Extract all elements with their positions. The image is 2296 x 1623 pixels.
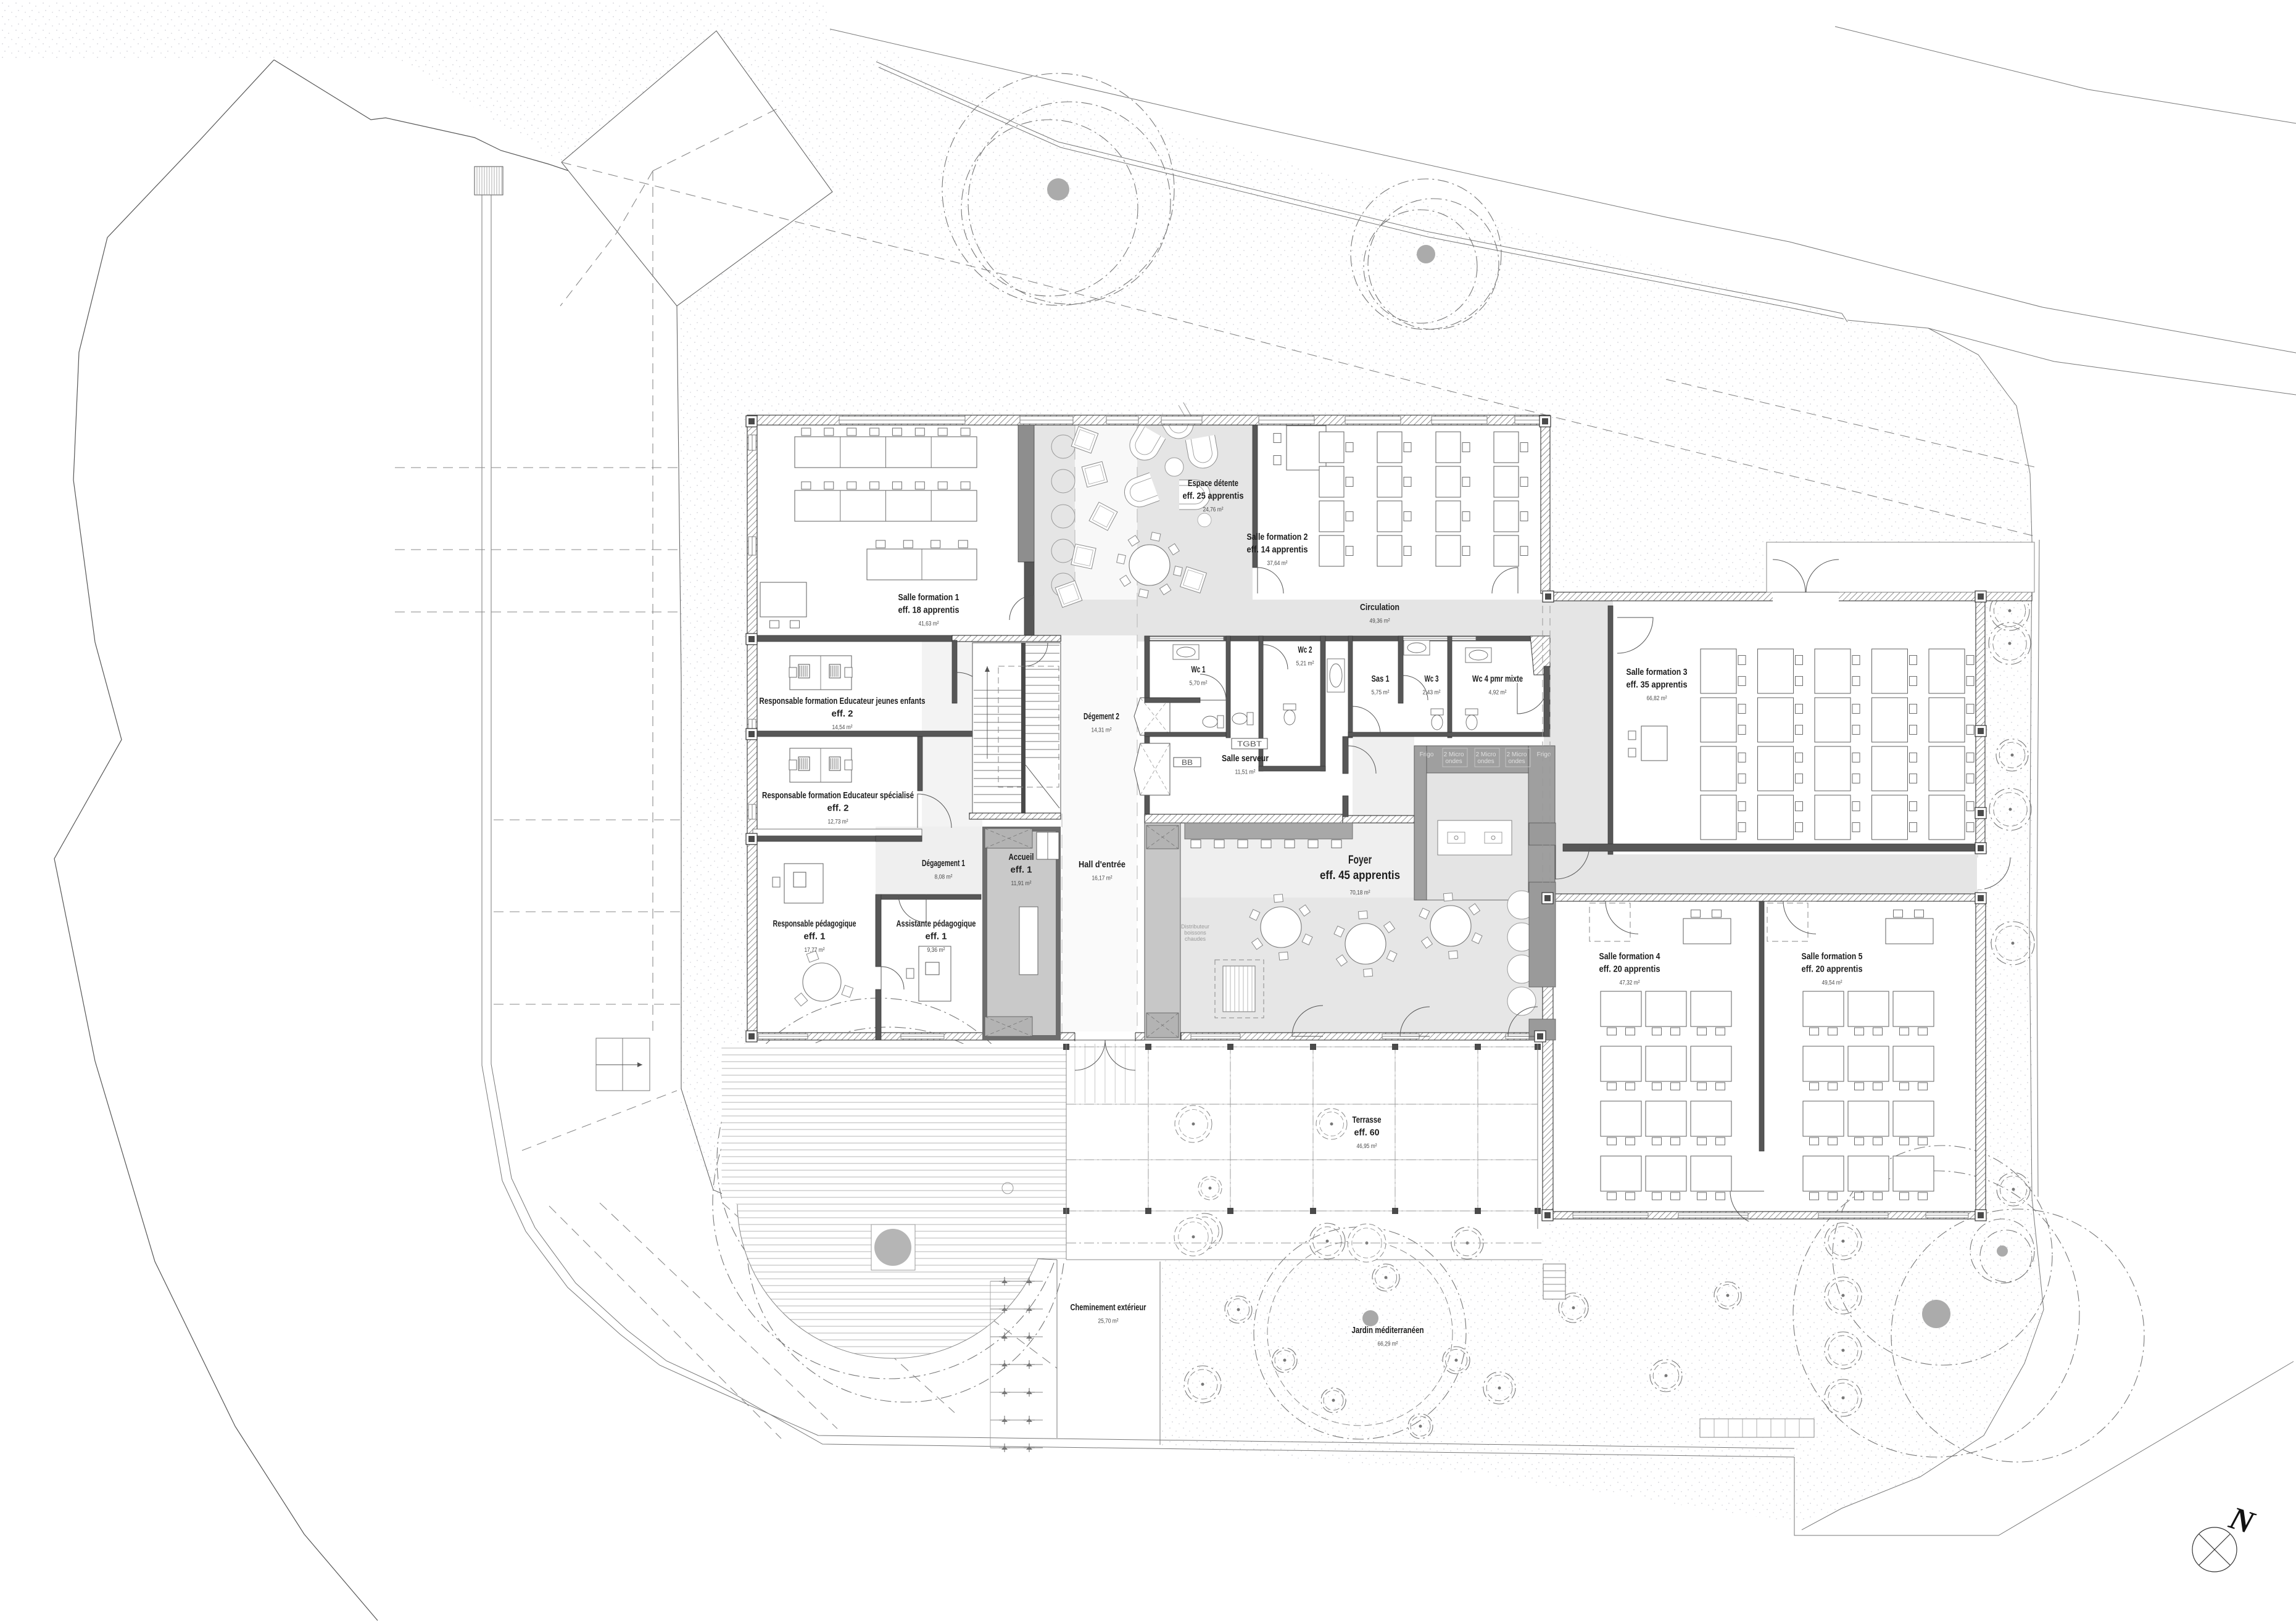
svg-text:eff. 35 apprentis: eff. 35 apprentis: [1627, 680, 1688, 690]
svg-text:Accueil: Accueil: [1009, 853, 1034, 862]
svg-text:25,70 m²: 25,70 m²: [1098, 1318, 1119, 1325]
svg-text:Terrasse: Terrasse: [1353, 1115, 1382, 1125]
svg-text:Espace détente: Espace détente: [1188, 479, 1238, 489]
svg-text:41,63 m²: 41,63 m²: [919, 621, 940, 627]
svg-text:2 Micro: 2 Micro: [1507, 751, 1527, 758]
svg-text:Responsable formation Educateu: Responsable formation Educateur spéciali…: [762, 791, 914, 801]
svg-text:eff. 45 apprentis: eff. 45 apprentis: [1320, 869, 1400, 882]
svg-text:Wc 2: Wc 2: [1298, 645, 1312, 655]
svg-text:Frigo: Frigo: [1537, 751, 1551, 758]
svg-text:TGBT: TGBT: [1237, 740, 1262, 748]
svg-text:eff. 2: eff. 2: [832, 709, 853, 719]
svg-text:2 Micro: 2 Micro: [1476, 751, 1496, 758]
svg-text:11,51 m²: 11,51 m²: [1235, 769, 1256, 776]
svg-text:9,36 m²: 9,36 m²: [927, 947, 946, 954]
svg-text:chaudes: chaudes: [1185, 936, 1206, 942]
svg-text:eff. 18 apprentis: eff. 18 apprentis: [898, 606, 959, 616]
svg-text:Circulation: Circulation: [1360, 603, 1399, 613]
svg-text:70,18 m²: 70,18 m²: [1350, 890, 1371, 896]
svg-text:Frigo: Frigo: [1420, 751, 1434, 758]
svg-text:Salle serveur: Salle serveur: [1222, 754, 1269, 764]
svg-text:Responsable pédagogique: Responsable pédagogique: [773, 919, 856, 929]
svg-text:Wc 3: Wc 3: [1425, 674, 1439, 684]
svg-text:46,95 m²: 46,95 m²: [1357, 1143, 1378, 1150]
svg-text:Wc 1: Wc 1: [1192, 665, 1206, 675]
svg-text:66,29 m²: 66,29 m²: [1378, 1341, 1399, 1348]
svg-text:Salle formation 2: Salle formation 2: [1247, 532, 1308, 542]
svg-text:BB: BB: [1182, 758, 1193, 767]
svg-text:5,75 m²: 5,75 m²: [1372, 690, 1390, 696]
svg-text:Cheminement extérieur: Cheminement extérieur: [1071, 1303, 1146, 1313]
svg-text:eff. 2: eff. 2: [827, 804, 849, 814]
svg-text:49,36 m²: 49,36 m²: [1370, 618, 1391, 625]
svg-text:47,32 m²: 47,32 m²: [1620, 980, 1641, 986]
svg-text:12,73 m²: 12,73 m²: [828, 819, 849, 825]
svg-text:16,17 m²: 16,17 m²: [1092, 875, 1113, 882]
svg-text:2 Micro: 2 Micro: [1444, 751, 1464, 758]
svg-text:eff. 25 apprentis: eff. 25 apprentis: [1183, 492, 1244, 502]
svg-text:24,76 m²: 24,76 m²: [1203, 506, 1224, 513]
svg-text:17,77 m²: 17,77 m²: [805, 947, 826, 954]
svg-text:eff. 1: eff. 1: [926, 932, 947, 942]
svg-text:ondes: ondes: [1445, 758, 1462, 765]
svg-text:37,64 m²: 37,64 m²: [1267, 560, 1288, 567]
svg-text:Distributeur: Distributeur: [1181, 923, 1209, 930]
svg-text:2,43 m²: 2,43 m²: [1423, 690, 1441, 696]
svg-text:Wc 4 pmr mixte: Wc 4 pmr mixte: [1472, 674, 1523, 684]
svg-text:14,31 m²: 14,31 m²: [1092, 727, 1113, 734]
svg-text:Salle formation 5: Salle formation 5: [1802, 952, 1863, 962]
svg-text:eff. 60: eff. 60: [1354, 1128, 1380, 1138]
svg-text:5,70 m²: 5,70 m²: [1190, 680, 1208, 687]
svg-text:11,91 m²: 11,91 m²: [1011, 880, 1032, 887]
svg-text:Assistante pédagogique: Assistante pédagogique: [897, 919, 976, 929]
svg-text:5,21 m²: 5,21 m²: [1296, 661, 1315, 667]
svg-text:49,54 m²: 49,54 m²: [1822, 980, 1843, 986]
svg-text:8,08 m²: 8,08 m²: [935, 874, 953, 881]
svg-text:Foyer: Foyer: [1348, 854, 1372, 867]
svg-text:Dégagement 1: Dégagement 1: [922, 859, 965, 869]
svg-text:eff. 1: eff. 1: [804, 932, 826, 942]
svg-text:Salle formation 1: Salle formation 1: [898, 593, 959, 603]
svg-text:ondes: ondes: [1477, 758, 1494, 765]
svg-text:Jardin méditerranéen: Jardin méditerranéen: [1352, 1326, 1424, 1336]
svg-text:ondes: ondes: [1508, 758, 1525, 765]
svg-text:eff. 20 apprentis: eff. 20 apprentis: [1802, 965, 1863, 975]
svg-text:Salle formation 3: Salle formation 3: [1627, 667, 1688, 677]
svg-text:Dégement 2: Dégement 2: [1084, 712, 1119, 722]
svg-text:Responsable formation Educateu: Responsable formation Educateur jeunes e…: [760, 696, 926, 706]
svg-text:Salle formation 4: Salle formation 4: [1599, 952, 1660, 962]
svg-text:Sas 1: Sas 1: [1372, 674, 1390, 684]
svg-text:eff. 14 apprentis: eff. 14 apprentis: [1247, 545, 1308, 555]
svg-text:boissons: boissons: [1184, 930, 1206, 936]
svg-text:Hall d'entrée: Hall d'entrée: [1079, 860, 1125, 870]
svg-text:66,82 m²: 66,82 m²: [1647, 695, 1668, 702]
svg-text:eff. 20 apprentis: eff. 20 apprentis: [1599, 965, 1660, 975]
svg-text:14,54 m²: 14,54 m²: [832, 724, 853, 731]
svg-text:4,92 m²: 4,92 m²: [1489, 690, 1507, 696]
svg-text:eff. 1: eff. 1: [1011, 865, 1032, 875]
